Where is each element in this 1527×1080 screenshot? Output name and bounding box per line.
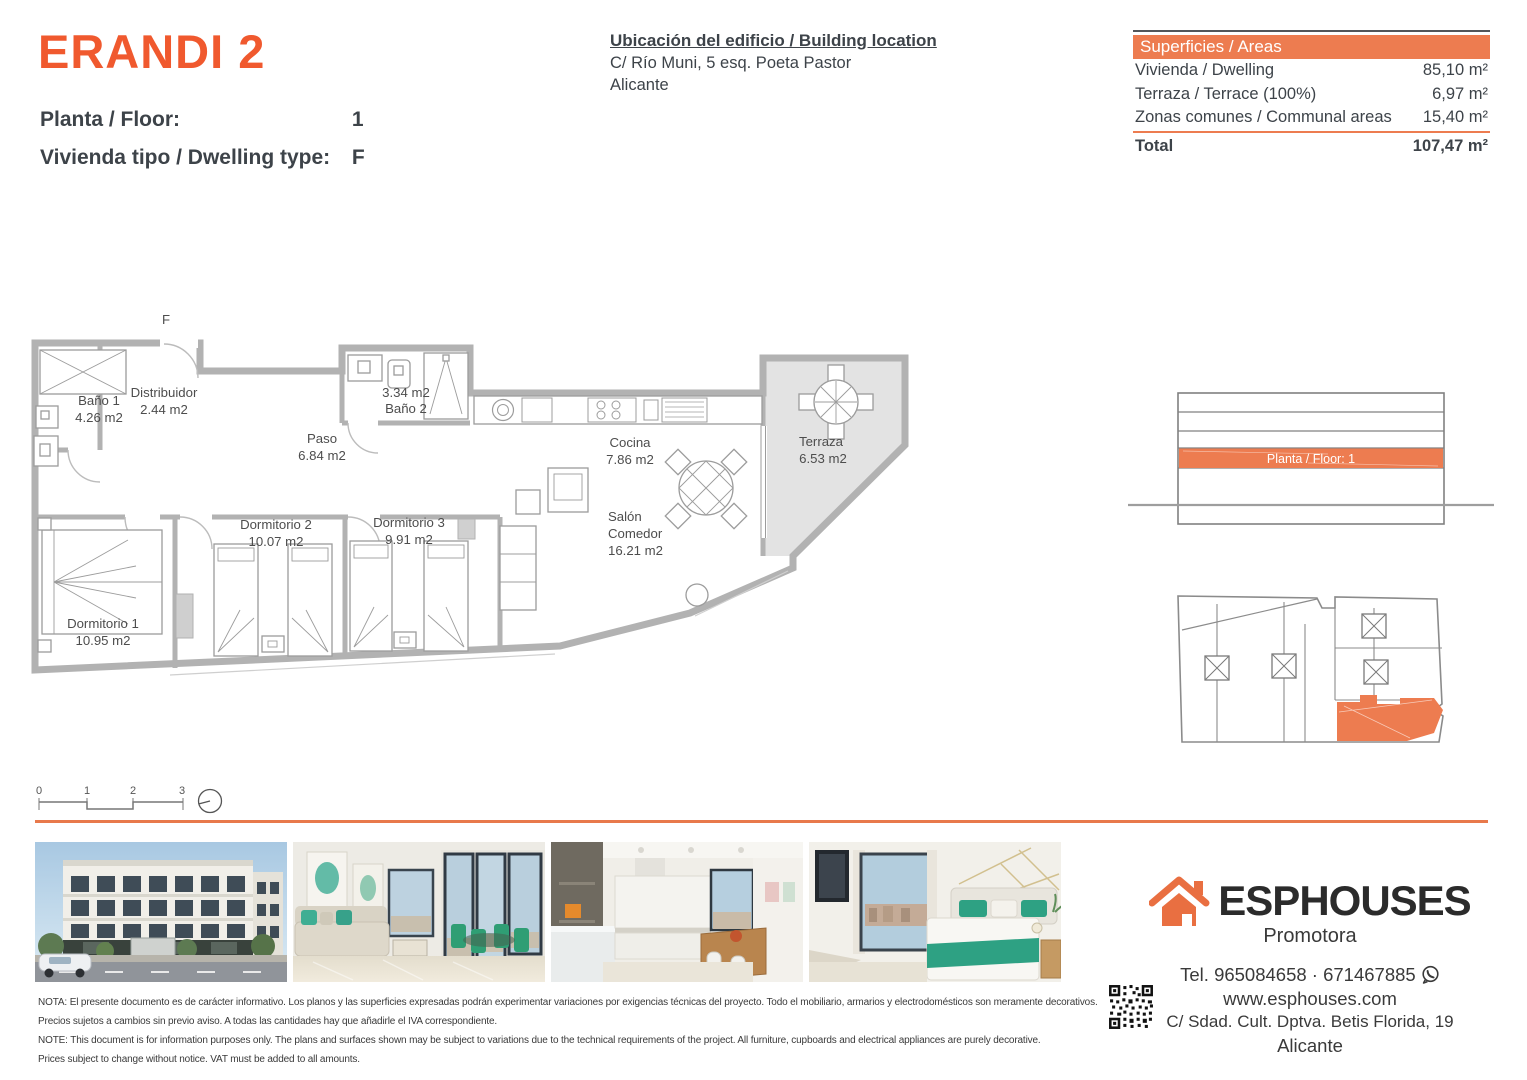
total-label: Total <box>1135 135 1173 157</box>
area-value: 15,40 m² <box>1423 107 1488 129</box>
table-row: Terraza / Terrace (100%) 6,97 m² <box>1133 83 1490 107</box>
areas-total-row: Total 107,47 m² <box>1133 131 1490 159</box>
dining-table <box>665 449 746 528</box>
total-value: 107,47 m² <box>1413 135 1488 157</box>
entrance-door-arc <box>164 344 198 378</box>
orange-divider <box>35 820 1488 823</box>
room-label: Dormitorio 1 <box>67 616 139 631</box>
dwelling-type-row: Vivienda tipo / Dwelling type: F <box>40 146 365 170</box>
building-location-title: Ubicación del edificio / Building locati… <box>610 30 937 52</box>
area-label: Zonas comunes / Communal areas <box>1135 107 1392 129</box>
room-label: Comedor <box>608 526 663 541</box>
room-area: 6.53 m2 <box>799 451 847 466</box>
website: www.esphouses.com <box>1110 987 1510 1011</box>
floor-label: Planta / Floor: <box>40 108 346 132</box>
dwelling-type-value: F <box>352 146 365 169</box>
qr-code <box>1108 984 1154 1030</box>
note-line: NOTA: El presente documento es de caráct… <box>38 993 1098 1012</box>
photo-bedroom <box>809 842 1061 982</box>
phone-line: Tel. 965084658 · 671467885 <box>1110 963 1510 987</box>
floor-plan: F Baño 1 4.26 m2 Distribuidor 2.44 m2 Pa… <box>30 298 910 690</box>
room-label: Dormitorio 2 <box>240 517 312 532</box>
scale-bar: 0 1 2 3 <box>35 782 255 818</box>
dwelling-type-letter: F <box>162 312 170 327</box>
area-value: 6,97 m² <box>1432 84 1488 106</box>
brand-logo: ESPHOUSES <box>1110 874 1510 928</box>
building-section-diagram: Planta / Floor: 1 <box>1128 388 1494 530</box>
living-room-furniture <box>500 468 708 610</box>
room-label: Baño 2 <box>385 401 427 416</box>
area-label: Terraza / Terrace (100%) <box>1135 84 1316 106</box>
brochure-page: ERANDI 2 Planta / Floor: 1 Vivienda tipo… <box>0 0 1527 1080</box>
bathroom1-fixtures <box>34 350 126 466</box>
disclaimer-notes: NOTA: El presente documento es de caráct… <box>38 993 1098 1069</box>
section-floor-label: Planta / Floor: 1 <box>1267 452 1355 466</box>
area-value: 85,10 m² <box>1423 60 1488 82</box>
room-area: 9.91 m2 <box>385 532 433 547</box>
areas-table-top-border <box>1133 30 1490 32</box>
whatsapp-icon <box>1421 965 1440 984</box>
room-area: 4.26 m2 <box>75 410 123 425</box>
floor-value: 1 <box>352 108 364 131</box>
house-logo-icon <box>1149 874 1213 928</box>
room-label: Baño 1 <box>78 393 120 408</box>
room-area: 10.95 m2 <box>76 633 131 648</box>
developer-address: C/ Sdad. Cult. Dptva. Betis Florida, 19 <box>1110 1010 1510 1034</box>
room-label: Paso <box>307 431 337 446</box>
closet <box>458 519 475 539</box>
table-row: Zonas comunes / Communal areas 15,40 m² <box>1133 106 1490 130</box>
photo-kitchen <box>551 842 803 982</box>
floor-row: Planta / Floor: 1 <box>40 108 364 132</box>
scale-tick: 1 <box>84 785 90 797</box>
room-label: Dormitorio 3 <box>373 515 445 530</box>
brand-subtitle: Promotora <box>1110 925 1510 948</box>
room-label: Terraza <box>799 434 844 449</box>
note-line: NOTE: This document is for information p… <box>38 1031 1098 1050</box>
page-title: ERANDI 2 <box>38 24 265 79</box>
kitchen-counter <box>474 396 762 424</box>
photo-building-exterior <box>35 842 287 982</box>
note-line: Precios sujetos a cambios sin previo avi… <box>38 1012 1098 1031</box>
room-label: Distribuidor <box>131 385 198 400</box>
room-label: Salón <box>608 509 642 524</box>
scale-tick: 3 <box>179 785 185 797</box>
areas-table: Superficies / Areas Vivienda / Dwelling … <box>1133 30 1490 159</box>
areas-table-header: Superficies / Areas <box>1133 35 1490 59</box>
brand-name: ESPHOUSES <box>1218 877 1470 925</box>
room-area: 3.34 m2 <box>382 385 430 400</box>
room-area: 16.21 m2 <box>608 543 663 558</box>
table-row: Vivienda / Dwelling 85,10 m² <box>1133 59 1490 83</box>
building-location-city: Alicante <box>610 74 937 96</box>
building-location-address: C/ Río Muni, 5 esq. Poeta Pastor <box>610 52 937 74</box>
room-area: 2.44 m2 <box>140 402 188 417</box>
dwelling-type-label: Vivienda tipo / Dwelling type: <box>40 146 346 170</box>
area-label: Vivienda / Dwelling <box>1135 60 1274 82</box>
note-line: Prices subject to change without notice.… <box>38 1050 1098 1069</box>
room-area: 10.07 m2 <box>249 534 304 549</box>
scale-tick: 2 <box>130 785 136 797</box>
site-plan-diagram <box>1172 592 1452 760</box>
entrance-gap <box>160 338 198 348</box>
photo-strip <box>35 842 1061 982</box>
closet <box>176 594 193 638</box>
north-indicator-icon <box>199 790 222 813</box>
room-area: 6.84 m2 <box>298 448 346 463</box>
photo-living-room <box>293 842 545 982</box>
developer-block: ESPHOUSES Promotora Tel. 965084658 · 671… <box>1110 874 1510 1057</box>
scale-tick: 0 <box>36 785 42 797</box>
building-location-block: Ubicación del edificio / Building locati… <box>610 30 937 96</box>
room-label: Cocina <box>609 435 651 450</box>
developer-city: Alicante <box>1110 1034 1510 1058</box>
room-area: 7.86 m2 <box>606 452 654 467</box>
